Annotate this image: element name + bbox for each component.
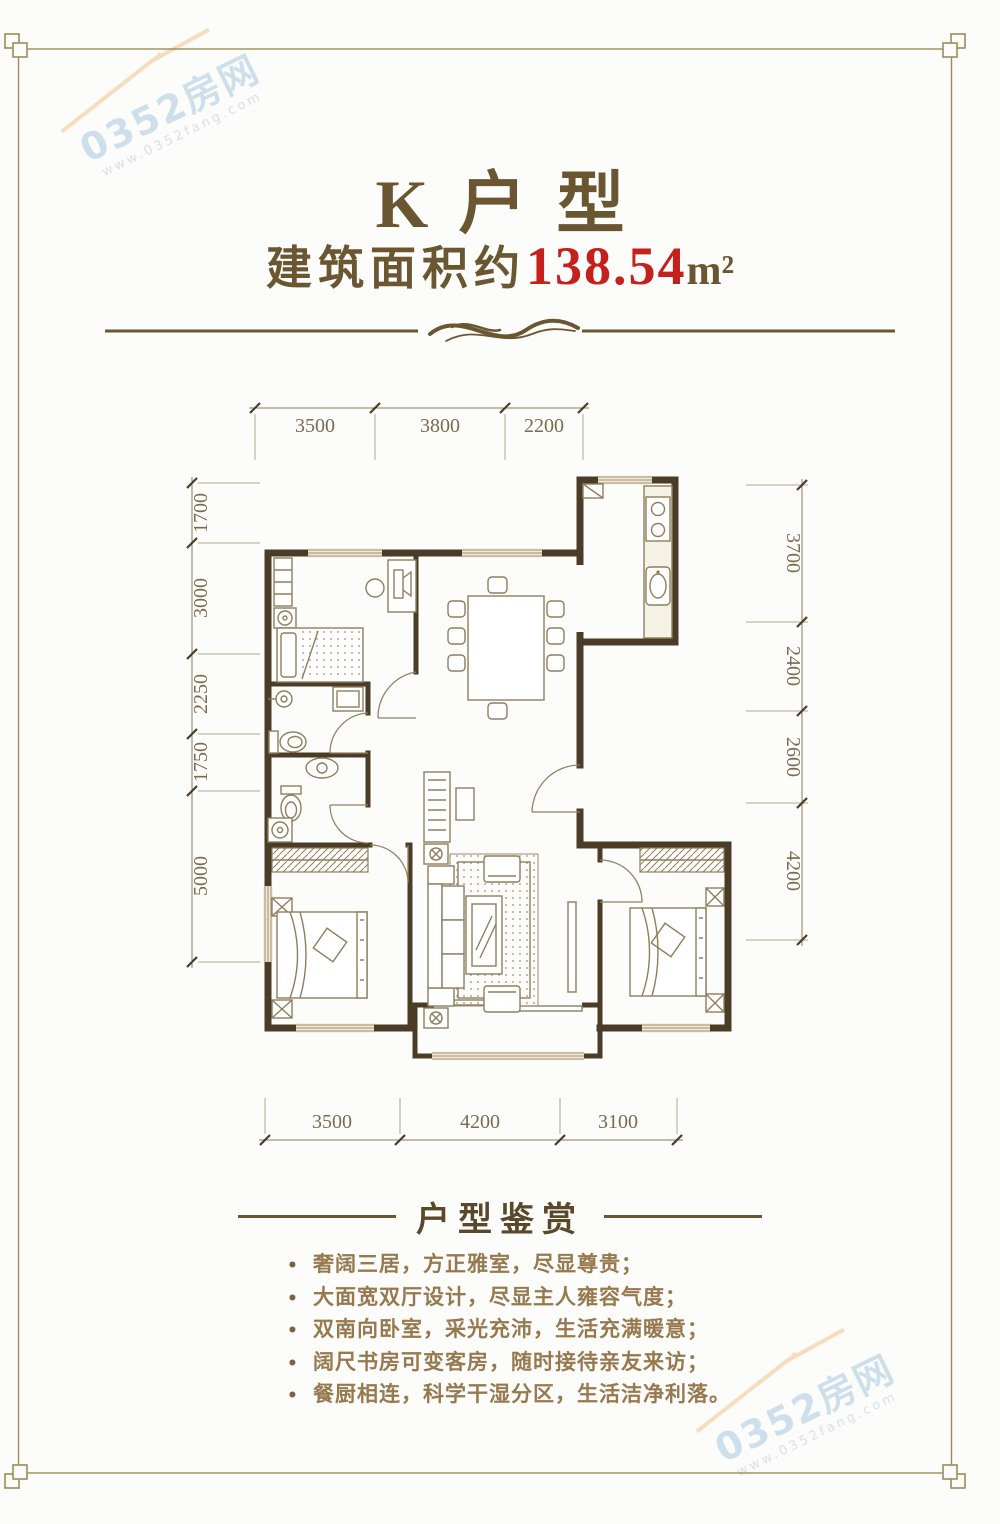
bullet-text: 大面宽双厅设计，尽显主人雍容气度； (313, 1281, 687, 1311)
knot-corner-icon (943, 34, 965, 57)
toilet-tank (269, 731, 278, 753)
chair (488, 703, 507, 719)
bullet-text: 餐厨相连，科学干湿分区，生活洁净利落。 (313, 1378, 731, 1408)
armchair (484, 856, 520, 882)
review-heading-row: 户型鉴赏 (0, 1192, 1000, 1241)
chair (547, 601, 564, 617)
sofa-back (428, 884, 442, 988)
bathroom-1 (268, 687, 363, 753)
stove (646, 497, 670, 541)
svg-text:3700: 3700 (782, 533, 804, 573)
toilet (281, 795, 301, 821)
sofa-arm (428, 866, 454, 884)
headboard (696, 908, 706, 996)
armchair (484, 986, 520, 1012)
svg-text:2400: 2400 (782, 646, 804, 686)
bullet-icon: • (287, 1289, 313, 1309)
review-heading: 户型鉴赏 (416, 1192, 584, 1241)
bullet-text: 双南向卧室，采光充沛，生活充满暖意； (313, 1313, 709, 1343)
list-item: •双南向卧室，采光充沛，生活充满暖意； (287, 1313, 767, 1346)
sofa-seat (442, 920, 464, 954)
dining-room (448, 577, 564, 719)
cabinet (456, 788, 474, 820)
svg-text:3100: 3100 (598, 1111, 638, 1133)
svg-text:5000: 5000 (190, 856, 212, 896)
chair (488, 577, 507, 593)
svg-text:2200: 2200 (524, 415, 564, 437)
svg-text:3500: 3500 (312, 1111, 352, 1133)
monitor (394, 570, 403, 598)
kitchen (583, 484, 672, 638)
svg-text:1750: 1750 (190, 742, 212, 782)
bullet-text: 阔尺书房可变客房，随时接待亲友来访； (313, 1346, 709, 1376)
bed (277, 912, 367, 998)
study-room (274, 558, 416, 682)
flourish-icon (430, 321, 578, 341)
bullet-icon: • (287, 1386, 313, 1406)
bullet-text: 奢阔三居，方正雅室，尽显尊贵； (313, 1248, 643, 1278)
bedroom-right (630, 848, 724, 1012)
sofa-seat (442, 954, 464, 988)
knot-corner-icon (5, 34, 27, 57)
bullet-icon: • (287, 1256, 313, 1276)
list-item: •餐厨相连，科学干湿分区，生活洁净利落。 (287, 1378, 767, 1411)
chair (448, 601, 465, 617)
svg-text:4200: 4200 (460, 1111, 500, 1133)
chair (547, 655, 564, 671)
sofa-arm (428, 988, 454, 1006)
svg-text:3500: 3500 (295, 415, 335, 437)
sofa-seat (442, 886, 464, 920)
svg-text:1700: 1700 (190, 493, 212, 533)
wall-sink (276, 691, 292, 707)
dining-table (468, 596, 544, 700)
tv (568, 902, 576, 992)
table-glass (472, 904, 496, 966)
chair (547, 628, 564, 644)
svg-text:4200: 4200 (782, 851, 804, 891)
list-item: •大面宽双厅设计，尽显主人雍容气度； (287, 1281, 767, 1314)
dimension-lines (187, 403, 808, 1145)
list-item: •奢阔三居，方正雅室，尽显尊贵； (287, 1248, 767, 1281)
list-item: •阔尺书房可变客房，随时接待亲友来访； (287, 1346, 767, 1379)
header-divider (105, 321, 895, 341)
pillow (281, 633, 296, 677)
heading-rule (238, 1215, 396, 1218)
sideboard (424, 772, 450, 842)
basin (306, 758, 338, 778)
bullet-icon: • (287, 1321, 313, 1341)
svg-text:2250: 2250 (190, 674, 212, 714)
bedroom-left (272, 848, 368, 1018)
svg-text:2600: 2600 (782, 737, 804, 777)
svg-text:3000: 3000 (190, 578, 212, 618)
svg-text:3800: 3800 (420, 415, 460, 437)
review-bullet-list: •奢阔三居，方正雅室，尽显尊贵； •大面宽双厅设计，尽显主人雍容气度； •双南向… (287, 1248, 767, 1411)
toilet-tank (281, 786, 301, 794)
living-room (424, 772, 576, 1028)
bullet-icon: • (287, 1354, 313, 1374)
knot-corner-icon (5, 1465, 27, 1488)
chair (366, 579, 384, 597)
chair (448, 655, 465, 671)
chair (448, 628, 465, 644)
headboard (357, 912, 367, 998)
brochure-page: 0352房网 www.0352fang.com 0352房网 www.0352f… (0, 0, 1000, 1524)
heading-rule (604, 1215, 762, 1218)
knot-corner-icon (943, 1465, 965, 1488)
bathroom-2 (268, 758, 338, 842)
